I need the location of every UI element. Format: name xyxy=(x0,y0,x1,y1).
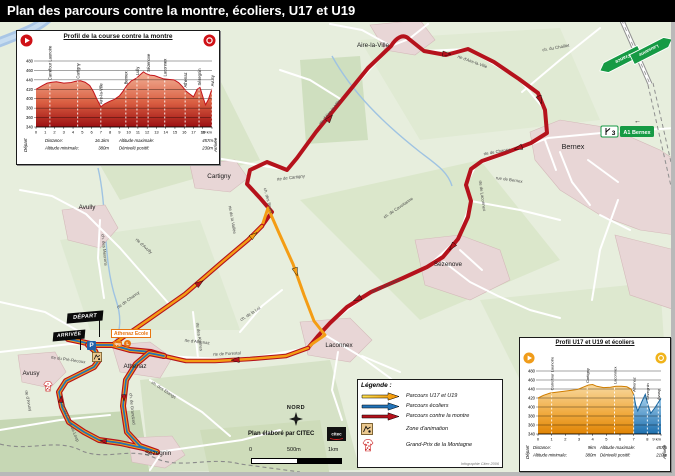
y-tick-label: 380 xyxy=(528,414,536,419)
village-label: Aire-la-Ville xyxy=(357,42,390,49)
landmark-label: Laconnex xyxy=(163,59,168,77)
x-tick-label: 5 xyxy=(81,130,84,135)
y-tick-label: 480 xyxy=(26,59,34,64)
village-label: Sézenove xyxy=(434,261,463,268)
info-value: 210m xyxy=(655,453,667,458)
info-value: 9km xyxy=(588,445,597,450)
legend-item-zone: Zone d'animation xyxy=(361,421,499,437)
race-logo-icon xyxy=(655,352,667,364)
legend: Légende : Parcours U17 et U19 Parcours é… xyxy=(357,379,503,468)
profile-clm-title: Profil de la course contre la montre xyxy=(17,33,219,40)
north-label: NORD xyxy=(281,405,311,411)
landmark-label: Laconnex xyxy=(612,367,617,384)
village-label: Bernex xyxy=(562,142,585,151)
compass-star-icon xyxy=(289,412,303,426)
route-arrow-orange-icon xyxy=(361,392,401,401)
x-tick-label: 0 xyxy=(537,437,540,442)
landmark-label: Carrefour Launoire xyxy=(549,356,554,390)
village-label: Cartigny xyxy=(207,173,231,180)
landmark-label: Avusy xyxy=(210,74,215,86)
x-tick-label: 0 xyxy=(35,130,38,135)
info-value: 230m xyxy=(201,146,213,151)
profile-inset-clm: Profil de la course contre la montre 340… xyxy=(16,30,220,165)
info-label: Altitude maximale: xyxy=(118,138,155,143)
x-tick-label: 7 xyxy=(100,130,103,135)
x-tick-label: 3 xyxy=(578,437,581,442)
scale-mid: 500m xyxy=(287,447,301,453)
profile-u17-title: Profil U17 et U19 et écoliers xyxy=(520,340,670,346)
info-value: 380m xyxy=(585,453,596,458)
landmark-label: Carrefour Launoire xyxy=(48,45,53,80)
landmark-label: Athenaz xyxy=(631,377,636,392)
profile-u17-chart: 340360380400420440460480Carrefour Launoi… xyxy=(520,338,670,471)
race-logo-icon xyxy=(20,34,33,47)
x-tick-label: 15 xyxy=(173,130,178,135)
start-label: Départ xyxy=(23,138,28,152)
x-tick-label: 2 xyxy=(564,437,567,442)
race-logo-icon xyxy=(523,352,535,364)
landmark-label: Cartigny xyxy=(585,368,590,383)
landmark-label: Avusy xyxy=(656,389,661,400)
info-label: Altitude maximale: xyxy=(599,445,636,450)
y-tick-label: 420 xyxy=(528,396,536,401)
info-label: Altitude minimale: xyxy=(44,146,80,151)
y-tick-label: 400 xyxy=(26,96,34,101)
info-label: Altitude minimale: xyxy=(532,453,568,458)
x-tick-label: 16 xyxy=(182,130,187,135)
landmark-label: Bernex xyxy=(124,71,129,84)
info-label: Distance: xyxy=(45,138,64,143)
landmark-label: Sézenove xyxy=(146,53,151,72)
scale-bar-graphic xyxy=(251,458,342,464)
y-tick-label: 340 xyxy=(528,432,536,437)
map-credit: Plan élaboré par CITEC xyxy=(248,431,314,437)
profile-area xyxy=(538,385,634,435)
x-tick-label: 9 xyxy=(118,130,121,135)
y-tick-label: 380 xyxy=(26,106,34,111)
village-label: Avusy xyxy=(22,370,40,377)
scale-bar: 0 500m 1km xyxy=(249,447,341,465)
landmark-label: Lully xyxy=(135,66,140,75)
info-value: 16.1km xyxy=(95,138,110,143)
x-tick-label: 4 xyxy=(72,130,75,135)
x-tick-label: 11 xyxy=(136,130,141,135)
svg-text:A1 Bernex: A1 Bernex xyxy=(623,130,651,136)
legend-item-clm: Parcours contre la montre xyxy=(361,411,499,421)
x-tick-label: 2 xyxy=(53,130,56,135)
mountain-jersey-icon xyxy=(42,381,54,392)
landmark-label: Sézegnin xyxy=(197,68,202,86)
legend-item-ecoliers: Parcours écoliers xyxy=(361,401,499,411)
athenaz-school-label: Athenaz Ecole xyxy=(111,329,151,338)
legend-caption: Infographie Citec 2006 xyxy=(461,462,499,466)
info-value: 380m xyxy=(98,146,109,151)
x-tick-label: 17 xyxy=(191,130,196,135)
x-tick-label: 13 xyxy=(154,130,159,135)
y-tick-label: 480 xyxy=(528,369,536,374)
end-label: Arrivée xyxy=(213,137,218,153)
info-label: Dénivelé positif: xyxy=(600,453,631,458)
page-title: Plan des parcours contre la montre, écol… xyxy=(0,0,675,22)
x-tick-label: 4 xyxy=(592,437,595,442)
y-tick-label: 400 xyxy=(528,405,536,410)
y-tick-label: 440 xyxy=(528,387,536,392)
info-label: Dénivelé positif: xyxy=(119,146,150,151)
x-tick-label: 6 xyxy=(619,437,622,442)
info-value: 457m xyxy=(656,445,667,450)
x-tick-label: 3 xyxy=(63,130,66,135)
legend-title: Légende : xyxy=(361,382,499,389)
village-label: Sézegnin xyxy=(145,450,172,457)
village-label: Athenaz xyxy=(123,363,146,370)
route-arrow-red-icon xyxy=(361,412,401,421)
svg-text:3: 3 xyxy=(612,130,616,137)
legend-item-u17: Parcours U17 et U19 xyxy=(361,391,499,401)
tpg-icon: tpg xyxy=(113,341,122,347)
landmark-label: Athenaz xyxy=(183,72,188,87)
x-tick-label: 1 xyxy=(551,437,554,442)
landmark-label: Cartigny xyxy=(75,62,80,78)
transit-chips: tpg L xyxy=(113,340,131,347)
x-tick-label: 10 xyxy=(126,130,131,135)
landmark-label: Aire-la-Ville xyxy=(99,83,104,105)
zone-animation-icon xyxy=(361,423,401,435)
parking-icon: P xyxy=(87,341,96,350)
village-label: Laconnex xyxy=(325,342,353,349)
legend-item-gpm: Grand-Prix de la Montagne xyxy=(361,437,499,453)
route-arrow-blue-icon xyxy=(361,402,401,411)
landmark-label: Sézegnin xyxy=(645,383,650,400)
y-tick-label: 440 xyxy=(26,77,34,82)
x-tick-label: 7 xyxy=(633,437,636,442)
start-label: Départ xyxy=(525,445,530,459)
info-value: 457m xyxy=(202,138,213,143)
profile-inset-u17: Profil U17 et U19 et écoliers 3403603804… xyxy=(519,337,671,472)
zone-animation-icon xyxy=(92,352,102,362)
y-tick-label: 340 xyxy=(26,125,34,130)
x-tick-label: 9 km xyxy=(652,437,661,442)
y-tick-label: 460 xyxy=(528,378,536,383)
x-tick-label: 8 xyxy=(646,437,649,442)
window-frame-right xyxy=(671,22,675,476)
x-tick-label: 1 xyxy=(44,130,47,135)
y-tick-label: 360 xyxy=(26,115,34,120)
finish-flag-pole xyxy=(80,339,81,350)
scale-end: 1km xyxy=(328,447,338,453)
start-flag-pole xyxy=(99,320,100,337)
x-tick-label: 8 xyxy=(109,130,112,135)
x-tick-label: 14 xyxy=(163,130,168,135)
village-label: Avully xyxy=(79,204,97,211)
x-tick-label: 19 km xyxy=(201,130,213,135)
map-plan-page: Plan des parcours contre la montre, écol… xyxy=(0,0,675,476)
race-logo-icon xyxy=(203,34,216,47)
y-tick-label: 420 xyxy=(26,87,34,92)
y-tick-label: 460 xyxy=(26,68,34,73)
x-tick-label: 12 xyxy=(145,130,150,135)
scale-zero: 0 xyxy=(249,447,252,453)
svg-text:citec: citec xyxy=(331,432,342,437)
y-tick-label: 360 xyxy=(528,423,536,428)
bus-line-icon: L xyxy=(124,340,131,347)
mountain-jersey-icon xyxy=(361,439,401,452)
x-tick-label: 6 xyxy=(90,130,93,135)
small-arrow-icon: ← xyxy=(634,118,641,125)
profile-clm-chart: 340360380400420440460480Carrefour Launoi… xyxy=(17,31,219,164)
x-tick-label: 5 xyxy=(605,437,608,442)
citec-logo: citec xyxy=(327,427,346,441)
info-label: Distance: xyxy=(533,445,552,450)
